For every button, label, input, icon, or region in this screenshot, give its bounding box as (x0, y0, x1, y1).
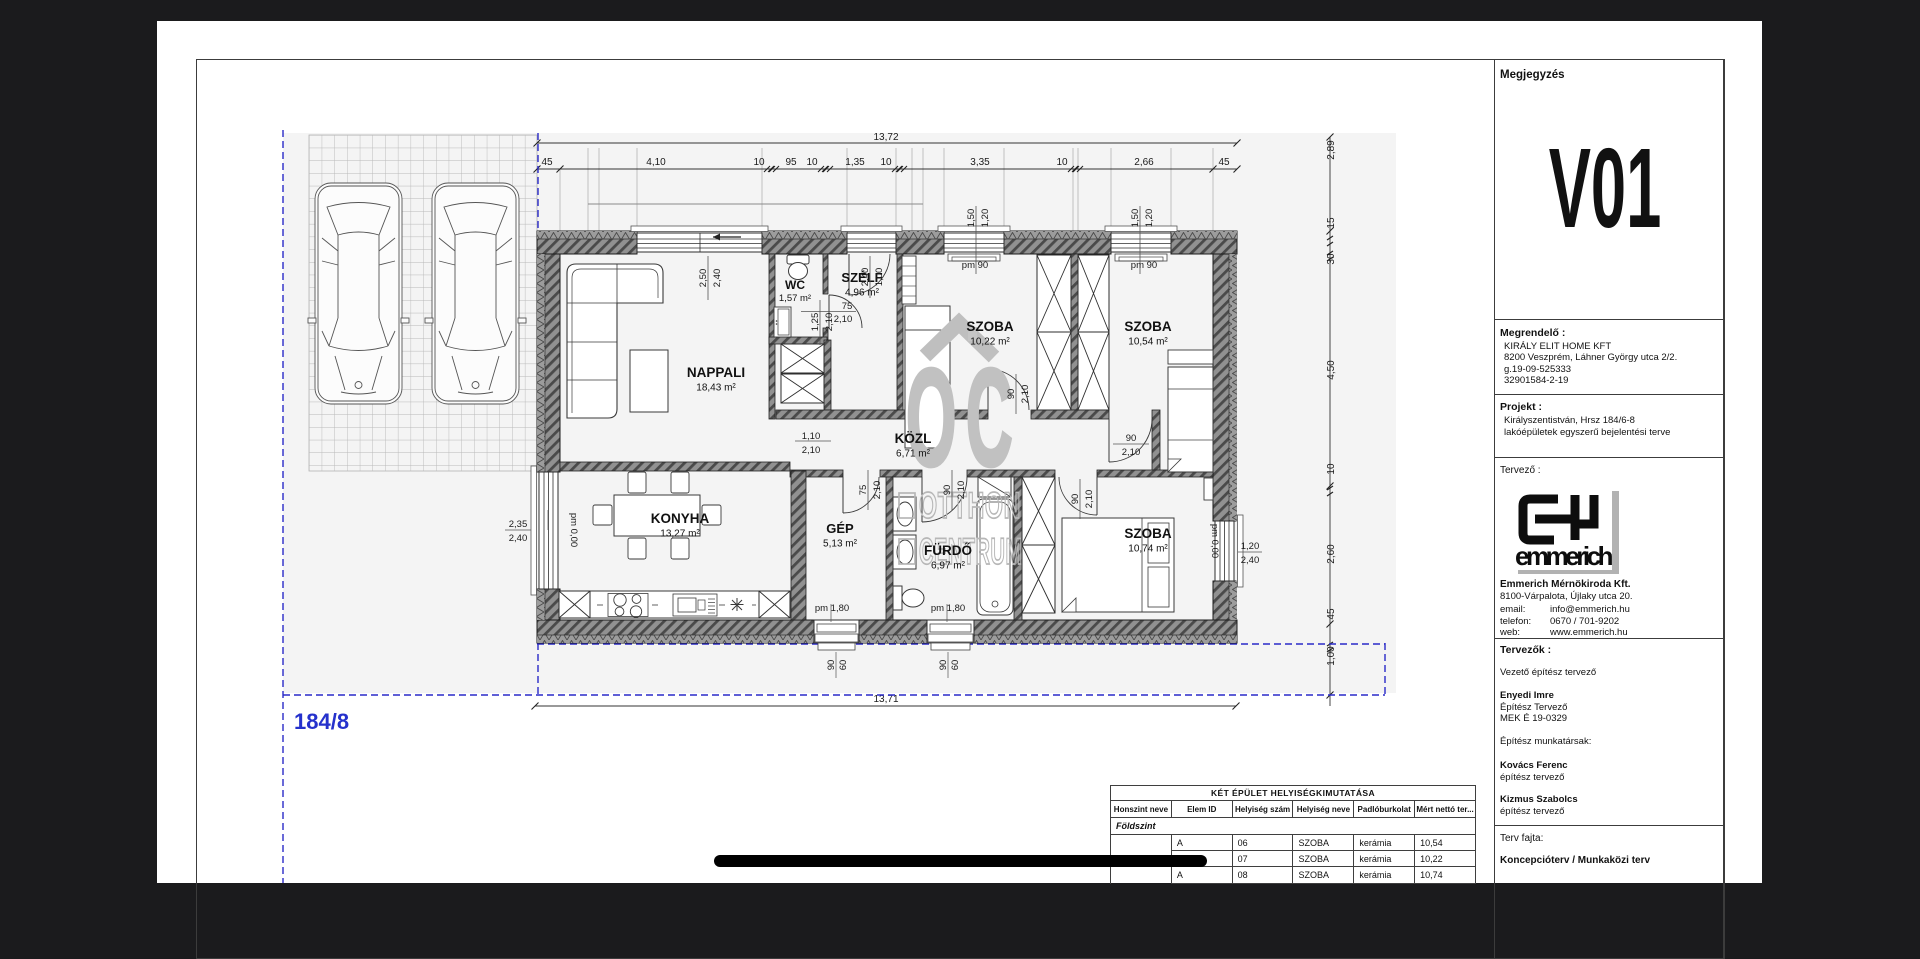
svg-text:1,00: 1,00 (1326, 646, 1337, 666)
svg-text:90: 90 (826, 660, 837, 671)
svg-text:90: 90 (942, 485, 953, 496)
svg-text:90: 90 (1006, 389, 1017, 400)
svg-text:5,13 m²: 5,13 m² (823, 539, 858, 550)
svg-text:2,10: 2,10 (802, 445, 821, 456)
svg-text:60: 60 (838, 660, 849, 671)
svg-text:1,00: 1,00 (874, 268, 885, 287)
svg-text:60: 60 (950, 660, 961, 671)
svg-text:SZOBA: SZOBA (1124, 526, 1172, 541)
svg-text:SZOBA: SZOBA (966, 319, 1014, 334)
svg-text:1,57 m²: 1,57 m² (779, 293, 811, 304)
svg-text:10,54 m²: 10,54 m² (1128, 337, 1168, 348)
svg-text:75: 75 (842, 301, 853, 312)
svg-text:pm 1,80: pm 1,80 (815, 603, 849, 614)
svg-text:4,50: 4,50 (1326, 360, 1337, 380)
svg-text:NAPPALI: NAPPALI (687, 365, 745, 380)
svg-text:OC: OC (906, 340, 1022, 495)
svg-text:6,71 m²: 6,71 m² (896, 449, 931, 460)
svg-text:2,10: 2,10 (1122, 447, 1141, 458)
svg-text:45: 45 (541, 157, 553, 168)
svg-text:75: 75 (858, 485, 869, 496)
svg-text:18,43 m²: 18,43 m² (696, 383, 736, 394)
svg-text:4,10: 4,10 (646, 157, 666, 168)
svg-text:pm 0,00: pm 0,00 (568, 513, 579, 547)
svg-text:2,10: 2,10 (872, 481, 883, 500)
svg-text:10: 10 (880, 157, 892, 168)
svg-text:30: 30 (1326, 253, 1337, 265)
svg-text:45: 45 (1326, 608, 1337, 620)
svg-text:45: 45 (1218, 157, 1230, 168)
svg-text:KÖZL: KÖZL (895, 431, 932, 446)
svg-text:90: 90 (938, 660, 949, 671)
svg-text:1,20: 1,20 (1241, 541, 1260, 552)
svg-text:pm 0,00: pm 0,00 (1209, 524, 1220, 558)
svg-text:1,50: 1,50 (966, 209, 977, 228)
svg-text:184/8: 184/8 (294, 709, 349, 734)
svg-text:2,50: 2,50 (698, 269, 709, 288)
svg-text:1,20: 1,20 (1144, 209, 1155, 228)
svg-text:2,35: 2,35 (509, 519, 528, 530)
svg-text:10: 10 (1326, 463, 1337, 475)
svg-text:10: 10 (806, 157, 818, 168)
svg-text:10,22 m²: 10,22 m² (970, 337, 1010, 348)
svg-text:15: 15 (1326, 217, 1337, 229)
svg-text:2,40: 2,40 (509, 533, 528, 544)
svg-text:13,27 m²: 13,27 m² (660, 529, 700, 540)
svg-text:10,74 m²: 10,74 m² (1128, 544, 1168, 555)
svg-text:GÉP: GÉP (826, 521, 854, 536)
svg-text:pm 90: pm 90 (1131, 260, 1157, 271)
svg-text:13,72: 13,72 (873, 132, 898, 143)
svg-text:2,40: 2,40 (1241, 555, 1260, 566)
svg-text:pm 1,80: pm 1,80 (931, 603, 965, 614)
svg-text:2,10: 2,10 (956, 481, 967, 500)
svg-text:2,40: 2,40 (860, 268, 871, 287)
svg-text:2,89: 2,89 (1326, 140, 1337, 160)
svg-text:1,20: 1,20 (980, 209, 991, 228)
svg-text:2,10: 2,10 (1020, 385, 1031, 404)
svg-text:2,10: 2,10 (1084, 490, 1095, 509)
svg-text:FÜRDŐ: FÜRDŐ (924, 543, 972, 558)
svg-text:SZOBA: SZOBA (1124, 319, 1172, 334)
svg-text:2,40: 2,40 (712, 269, 723, 288)
svg-text:3,35: 3,35 (970, 157, 990, 168)
svg-text:1,10: 1,10 (802, 431, 821, 442)
svg-text:4,96 m²: 4,96 m² (845, 288, 880, 299)
svg-text:KONYHA: KONYHA (651, 511, 710, 526)
svg-text:90: 90 (1126, 433, 1137, 444)
svg-text:WC: WC (785, 278, 805, 292)
svg-text:6,97 m²: 6,97 m² (931, 561, 966, 572)
svg-text:OTTHON: OTTHON (919, 484, 1021, 526)
svg-text:1,50: 1,50 (1130, 209, 1141, 228)
svg-text:95: 95 (785, 157, 797, 168)
svg-text:2,10: 2,10 (824, 313, 835, 332)
svg-text:10: 10 (1056, 157, 1068, 168)
svg-text:pm 90: pm 90 (962, 260, 988, 271)
svg-text:1,35: 1,35 (845, 157, 865, 168)
svg-text:10: 10 (753, 157, 765, 168)
svg-text:90: 90 (1070, 494, 1081, 505)
svg-text:2,66: 2,66 (1134, 157, 1154, 168)
svg-text:2,60: 2,60 (1326, 544, 1337, 564)
svg-text:2,10: 2,10 (834, 314, 853, 325)
svg-text:1,25: 1,25 (810, 313, 821, 332)
